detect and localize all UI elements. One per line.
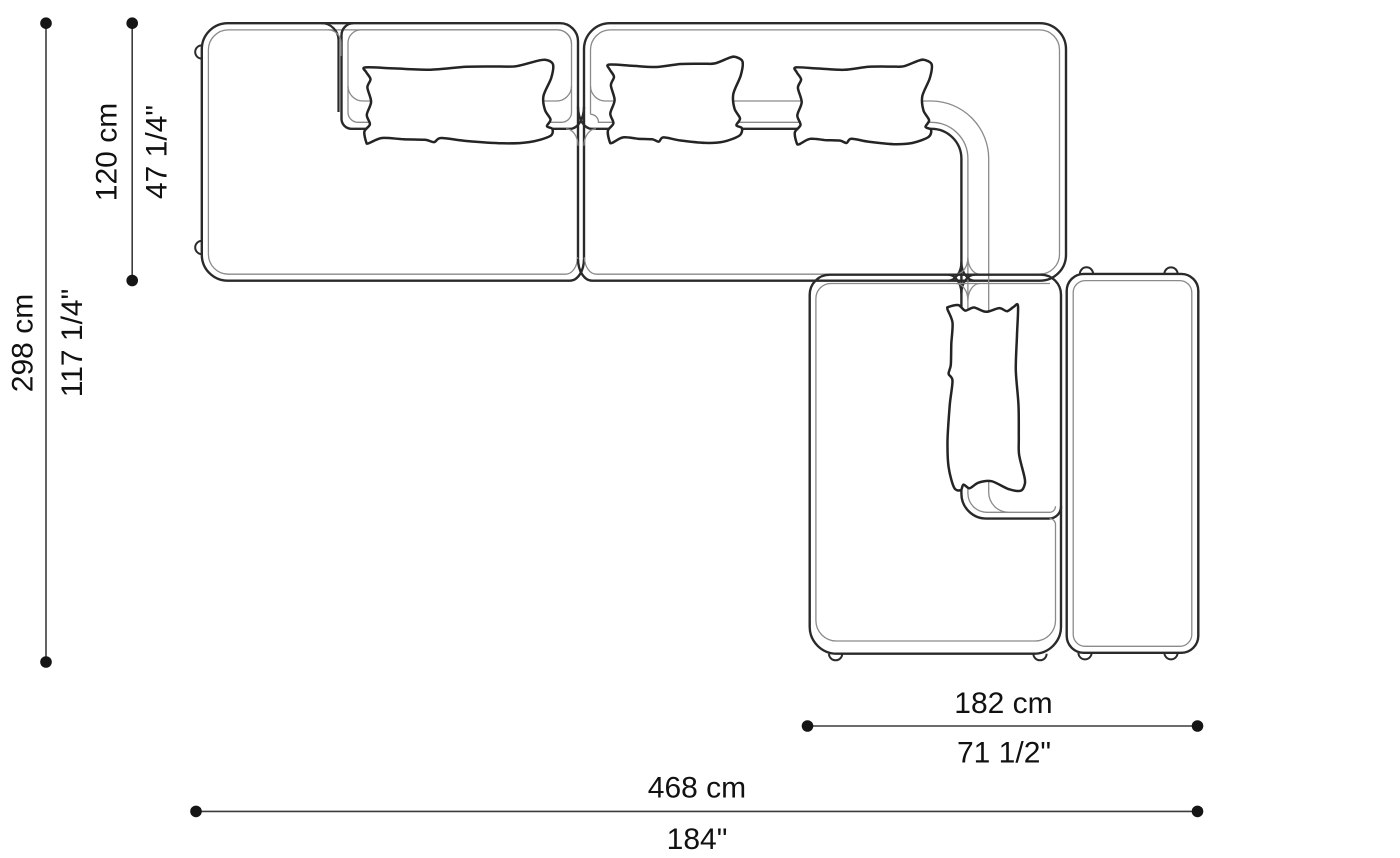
svg-text:71 1/2": 71 1/2": [957, 737, 1051, 770]
svg-text:120 cm: 120 cm: [91, 103, 124, 201]
svg-text:47 1/4": 47 1/4": [141, 105, 174, 199]
svg-text:117 1/4": 117 1/4": [56, 289, 89, 398]
svg-text:468 cm: 468 cm: [648, 772, 746, 805]
svg-text:298 cm: 298 cm: [7, 294, 40, 392]
svg-text:182 cm: 182 cm: [954, 687, 1052, 720]
svg-text:184": 184": [667, 823, 728, 856]
